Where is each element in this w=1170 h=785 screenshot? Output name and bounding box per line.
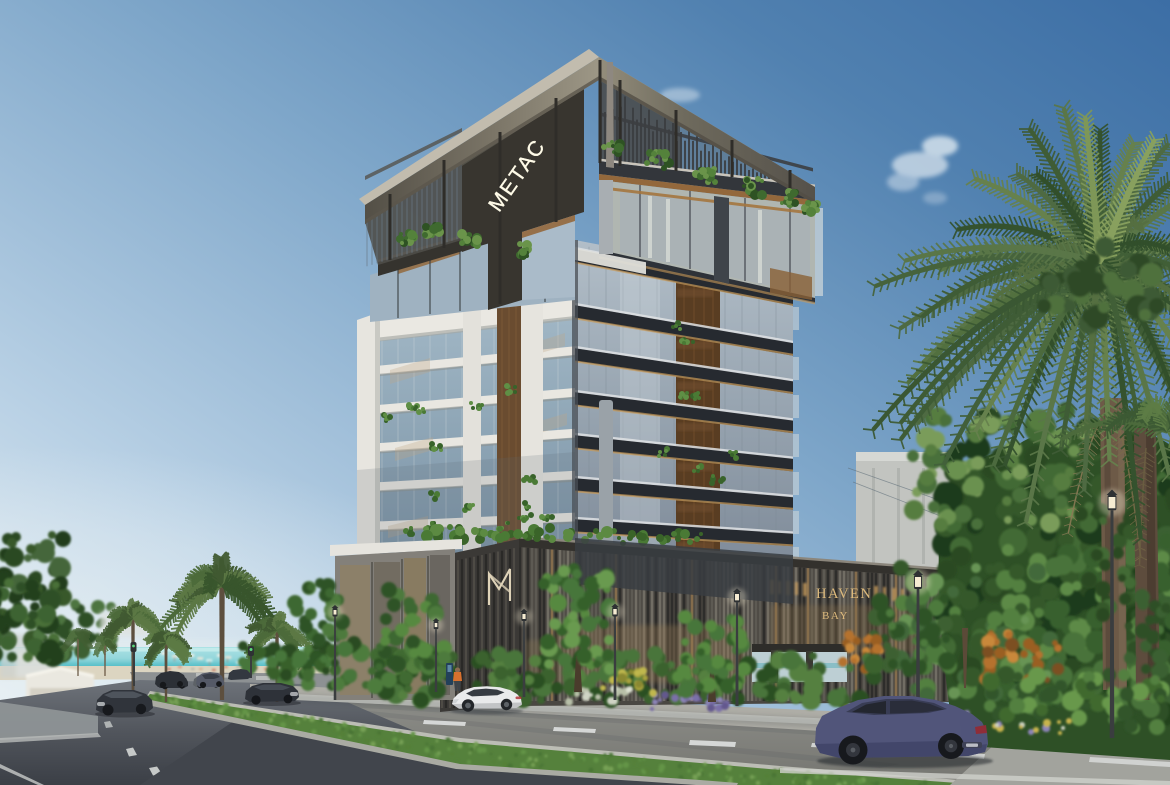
svg-text:HAVEN: HAVEN [816,586,872,602]
svg-text:BAY: BAY [822,610,849,622]
